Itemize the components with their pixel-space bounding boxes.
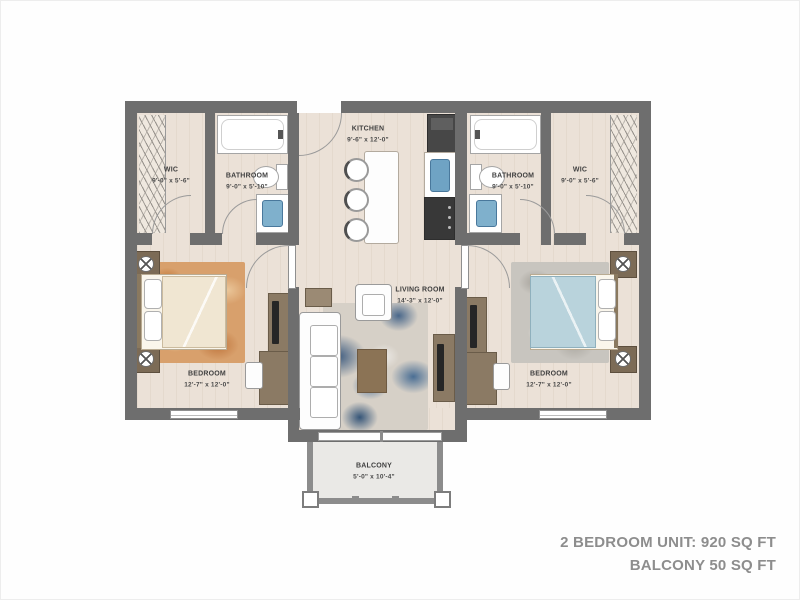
balcony-corner-post <box>302 491 319 508</box>
room-label-bathroom-left: BATHROOM 9'-0" x 5'-10" <box>226 172 268 193</box>
room-name: WIC <box>152 166 190 177</box>
wall <box>125 101 297 113</box>
blanket-left <box>162 276 226 348</box>
wall <box>341 101 651 113</box>
sofa-cushion <box>310 356 338 387</box>
wall <box>288 287 299 408</box>
bathtub-basin <box>474 119 537 150</box>
room-label-bathroom-right: BATHROOM 9'-0" x 5'-10" <box>492 172 534 193</box>
desk-chair-left <box>245 362 263 389</box>
range-knob <box>448 216 451 219</box>
kitchen-island <box>364 151 399 244</box>
vanity-right <box>469 194 502 233</box>
coffee-table <box>357 349 387 393</box>
room-dims: 9'-0" x 5'-10" <box>492 182 534 192</box>
bathtub-faucet-icon <box>278 130 283 139</box>
wall <box>554 233 586 245</box>
room-dims: 12'-7" x 12'-0" <box>526 380 572 390</box>
room-name: BATHROOM <box>492 172 534 183</box>
room-label-wic-right: WIC 9'-0" x 5'-6" <box>561 166 599 187</box>
unit-area-text: 2 BEDROOM UNIT: 920 SQ FT <box>560 531 776 554</box>
wall <box>137 233 152 245</box>
room-name: BEDROOM <box>184 370 230 381</box>
room-label-living-room: LIVING ROOM 14'-3" x 12'-0" <box>395 286 444 307</box>
room-label-kitchen: KITCHEN 9'-6" x 12'-0" <box>347 125 389 146</box>
wall <box>256 233 299 245</box>
nightstand-left-bottom <box>133 346 160 373</box>
nightstand-right-bottom <box>610 346 637 373</box>
bedroom-left-door-leaf <box>288 245 296 289</box>
tv-icon-living <box>437 344 444 391</box>
room-label-balcony: BALCONY 5'-0" x 10'-4" <box>353 462 395 483</box>
floor-plan-page: WIC 9'-0" x 5'-6" BATHROOM 9'-0" x 5'-10… <box>0 0 800 600</box>
stool-icon-3 <box>344 218 369 242</box>
room-name: BEDROOM <box>526 370 572 381</box>
room-dims: 9'-0" x 5'-10" <box>226 182 268 192</box>
range-knob <box>448 206 451 209</box>
desk-chair-right <box>493 363 510 390</box>
armchair <box>355 284 392 321</box>
wall <box>455 233 520 245</box>
wall <box>639 113 651 420</box>
room-dims: 14'-3" x 12'-0" <box>395 296 444 306</box>
balcony-area-text: BALCONY 50 SQ FT <box>560 554 776 577</box>
window-bedroom-left <box>170 410 238 419</box>
lamp-icon <box>138 351 154 367</box>
lamp-icon <box>615 351 631 367</box>
lamp-icon <box>615 256 631 272</box>
room-dims: 9'-6" x 12'-0" <box>347 135 389 145</box>
pillow <box>598 311 616 341</box>
balcony-corner-post <box>434 491 451 508</box>
side-table <box>305 288 332 307</box>
room-dims: 9'-0" x 5'-6" <box>561 176 599 186</box>
sink-icon-left <box>262 200 283 227</box>
railing-post <box>352 496 359 504</box>
pillow <box>144 279 162 309</box>
sofa <box>299 312 341 430</box>
wall <box>455 113 467 233</box>
vanity-left <box>256 194 289 233</box>
stool-icon-2 <box>344 188 369 212</box>
room-label-bedroom-left: BEDROOM 12'-7" x 12'-0" <box>184 370 230 391</box>
sink-icon-right <box>476 200 497 227</box>
wall <box>205 113 215 245</box>
room-label-wic-left: WIC 9'-0" x 5'-6" <box>152 166 190 187</box>
range-icon <box>424 197 455 240</box>
wall <box>125 113 137 420</box>
wall <box>288 113 299 233</box>
sofa-cushion <box>310 325 338 356</box>
room-name: LIVING ROOM <box>395 286 444 297</box>
bathtub-faucet-icon <box>475 130 480 139</box>
sliding-door-balcony <box>318 432 442 441</box>
bathtub-basin <box>221 119 284 150</box>
blanket-right <box>530 276 596 348</box>
stool-icon-1 <box>344 158 369 182</box>
pillow <box>598 279 616 309</box>
desk-bedroom-right <box>462 352 497 405</box>
balcony-railing <box>307 498 443 504</box>
window-bedroom-right <box>539 410 607 419</box>
room-name: BALCONY <box>353 462 395 473</box>
wall <box>455 287 467 408</box>
wall <box>624 233 639 245</box>
kitchen-sink-icon <box>430 159 450 192</box>
tv-icon-bedroom-left <box>272 301 279 344</box>
room-dims: 5'-0" x 10'-4" <box>353 472 395 482</box>
pillow <box>144 311 162 341</box>
room-dims: 9'-0" x 5'-6" <box>152 176 190 186</box>
tv-icon-bedroom-right <box>470 305 477 348</box>
lamp-icon <box>138 256 154 272</box>
room-name: WIC <box>561 166 599 177</box>
sofa-cushion <box>310 387 338 418</box>
bathtub-icon-left <box>217 115 288 154</box>
room-label-bedroom-right: BEDROOM 12'-7" x 12'-0" <box>526 370 572 391</box>
kitchen-counter <box>424 152 456 198</box>
room-name: BATHROOM <box>226 172 268 183</box>
railing-post <box>392 496 399 504</box>
fridge-icon <box>427 114 457 153</box>
area-summary: 2 BEDROOM UNIT: 920 SQ FT BALCONY 50 SQ … <box>560 531 776 578</box>
room-name: KITCHEN <box>347 125 389 136</box>
room-dims: 12'-7" x 12'-0" <box>184 380 230 390</box>
armchair-cushion <box>362 294 385 316</box>
fridge-top <box>431 118 453 130</box>
bathtub-icon-right <box>470 115 541 154</box>
range-knob <box>448 226 451 229</box>
headboard-left <box>137 274 141 348</box>
